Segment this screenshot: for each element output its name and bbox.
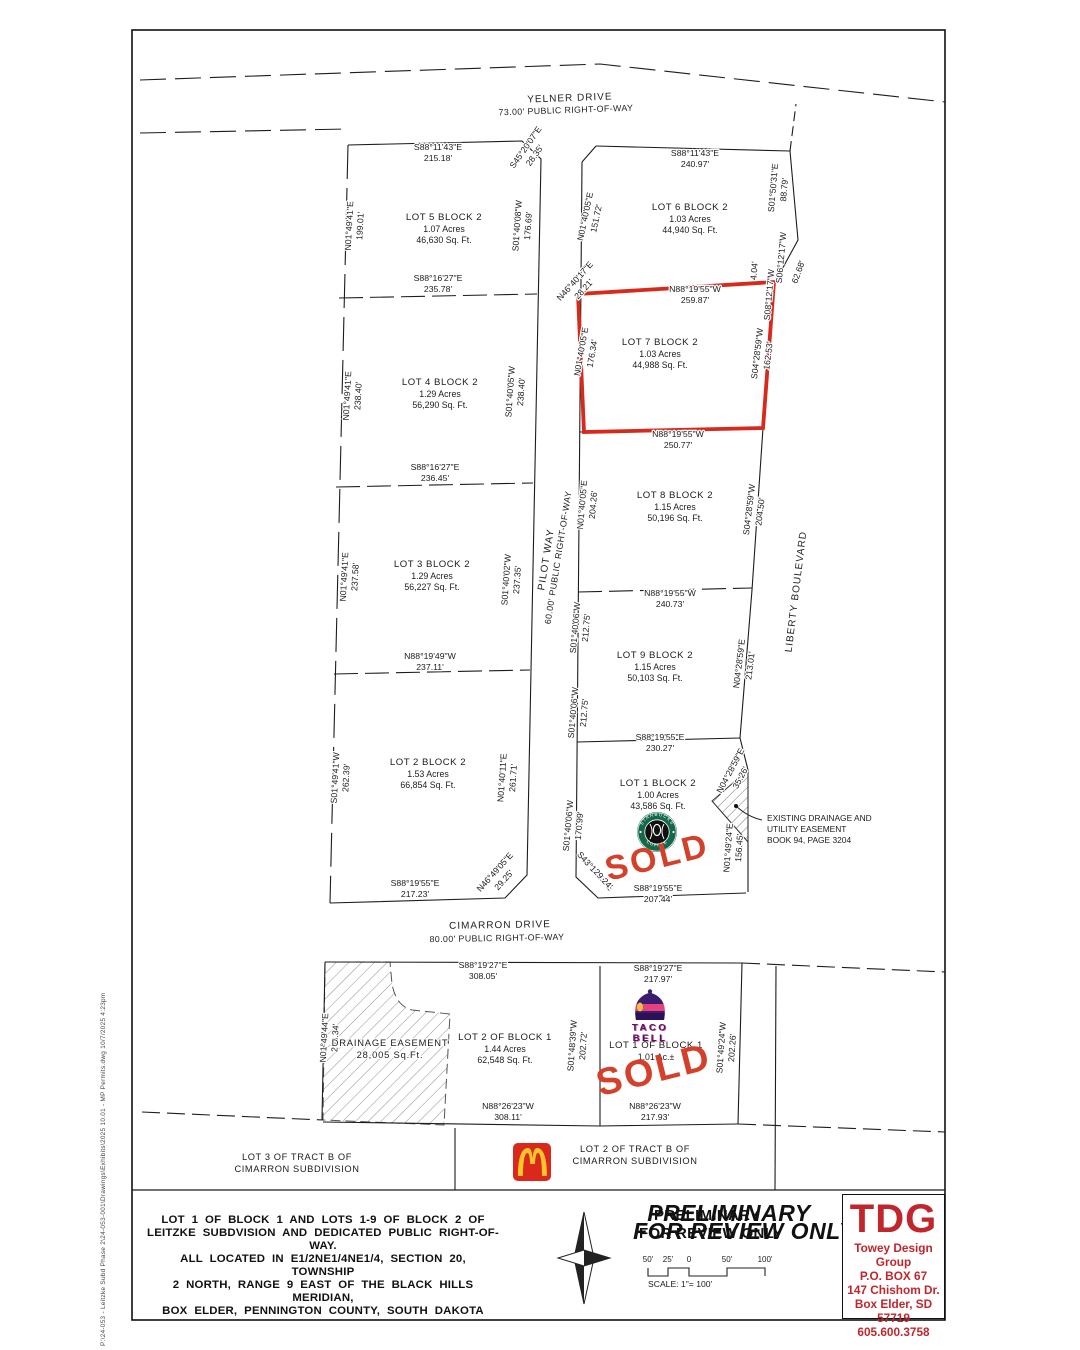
preliminary-stamp-line: FOR REVIEW ONLY	[639, 1225, 783, 1242]
lot-sqft-label: 44,988 Sq. Ft.	[632, 360, 687, 370]
lot-acres-label: 1.53 Acres	[407, 769, 449, 779]
bearing-label: S01°49'24"W	[714, 1021, 728, 1074]
street-name-label: CIMARRON DRIVE	[449, 919, 551, 932]
bearing-label: 217.93'	[641, 1112, 670, 1122]
taco-bell-word: TACO	[632, 1023, 668, 1034]
bearing-label: N88°26'23"W	[629, 1101, 681, 1111]
lot-name-label: LOT 2 OF BLOCK 1	[458, 1032, 552, 1043]
bearing-label: S01°50'31"E	[766, 163, 780, 213]
tract-note-line: CIMARRON SUBDIVISION	[234, 1164, 359, 1174]
bearing-label: N88°19'55"W	[652, 429, 704, 439]
bearing-label: N88°19'55"W	[644, 588, 696, 598]
lot-acres-label: 1.07 Acres	[423, 224, 465, 234]
scale-bar	[648, 1268, 765, 1276]
lot-acres-label: 1.29 Acres	[411, 571, 453, 581]
bearing-label: 238.40'	[515, 377, 527, 406]
bearing-label: 4.04'	[748, 261, 760, 281]
lot-name-label: LOT 3 BLOCK 2	[394, 559, 470, 570]
taco-bell-logo	[630, 989, 670, 1022]
bearing-label: S88°16'27"E	[414, 273, 463, 283]
easement-leader-dot	[734, 804, 738, 808]
bearing-label: S88°19'27"E	[459, 960, 508, 970]
bearing-label: 204.50'	[753, 497, 766, 527]
bearing-label: 215.18'	[424, 153, 453, 163]
bearing-label: 217.97'	[644, 974, 673, 984]
scale-bar-tick-label: 100'	[758, 1255, 773, 1264]
bearing-label: 212.75'	[580, 613, 592, 642]
lot-acres-label: 1.03 Acres	[639, 349, 681, 359]
bearing-label: 88.79'	[778, 177, 790, 202]
boundary-line	[790, 104, 796, 151]
bearing-label: 261.71'	[507, 763, 519, 792]
bearing-label: S01°40'05"W	[503, 365, 517, 418]
bearing-label: 240.97'	[681, 159, 710, 169]
bearing-label: 62.68'	[789, 259, 807, 285]
boundary-line	[336, 483, 533, 487]
street-row-label: 73.00' PUBLIC RIGHT-OF-WAY	[498, 103, 633, 118]
lot-sqft-label: 50,103 Sq. Ft.	[627, 673, 682, 683]
bearing-label: 176.69'	[522, 211, 534, 240]
bearing-label: S88°19'55"E	[634, 883, 683, 893]
bearing-label: S01°48'39"W	[565, 1019, 579, 1072]
bearing-label: N88°19'49"W	[404, 651, 456, 661]
lot-sqft-label: 46,630 Sq. Ft.	[416, 235, 471, 245]
lot-name-label: LOT 4 BLOCK 2	[402, 377, 478, 388]
bearing-label: 308.11'	[494, 1112, 522, 1122]
bearing-label: 235.78'	[424, 284, 453, 294]
taco-bell-word: BELL	[633, 1033, 668, 1044]
street-name-label: LIBERTY BOULEVARD	[784, 530, 810, 652]
scale-bar-tick-label: 50'	[722, 1255, 733, 1264]
bearing-label: N01°49'41"E	[341, 371, 354, 421]
bearing-label: 212.75'	[578, 698, 590, 727]
bearing-label: S06°12'17"W	[774, 231, 788, 284]
lot-acres-label: 1.44 Acres	[484, 1044, 526, 1054]
bearing-label: 237.11'	[416, 662, 444, 672]
bearing-label: N01°49'41"E	[338, 552, 351, 602]
boundary-line	[738, 963, 742, 1124]
bearing-label: N88°26'23"W	[482, 1101, 534, 1111]
bearing-label: 237.35'	[511, 565, 523, 594]
lot-name-label: LOT 8 BLOCK 2	[637, 490, 713, 501]
bearing-label: 236.45'	[421, 473, 450, 483]
lot-acres-label: 1.15 Acres	[634, 662, 676, 672]
bearing-label: N88°19'55"W	[669, 284, 721, 294]
bearing-label: N01°49'41"E	[343, 201, 356, 251]
lot-acres-label: 1.15 Acres	[654, 502, 696, 512]
lot-name-label: LOT 9 BLOCK 2	[617, 650, 693, 661]
boundary-line	[775, 966, 776, 1190]
boundary-line	[142, 1112, 323, 1120]
easement-note-line: BOOK 94, PAGE 3204	[767, 835, 851, 845]
scale-bar-tick-label: 50'	[643, 1255, 654, 1264]
scale-bar-tick-label: 0	[687, 1255, 692, 1264]
bearing-label: 170.99'	[573, 811, 585, 840]
bearing-label: S88°19'27"E	[634, 963, 683, 973]
bearing-label: 202.72'	[577, 1031, 589, 1060]
lot-sqft-label: 50,196 Sq. Ft.	[647, 513, 702, 523]
bearing-label: N01°49'24"E	[721, 823, 734, 873]
bearing-label: 250.77'	[664, 440, 693, 450]
lot-sqft-label: 66,854 Sq. Ft.	[400, 780, 455, 790]
tract-note-line: CIMARRON SUBDIVISION	[572, 1156, 697, 1166]
bearing-label: 240.73'	[656, 599, 685, 609]
lot-acres-label: 1.03 Acres	[669, 214, 711, 224]
bearing-label: S88°11'43"E	[671, 148, 719, 158]
bearing-label: 213.01'	[743, 651, 756, 681]
bearing-label: 204.26'	[587, 490, 599, 519]
bearing-label: 262.39'	[340, 763, 351, 792]
drainage-easement-label: DRAINAGE EASEMENT	[332, 1037, 449, 1048]
bearing-label: 259.87'	[681, 295, 710, 305]
north-arrow	[558, 1212, 610, 1304]
drainage-easement-label: 28,005 Sq.Ft.	[357, 1049, 424, 1060]
plat-drawing-svg: YELNER DRIVE73.00' PUBLIC RIGHT-OF-WAYPI…	[0, 0, 1080, 1350]
sheet-border	[132, 30, 945, 1320]
bearing-label: S88°11'43"E	[414, 142, 462, 152]
street-row-label: 80.00' PUBLIC RIGHT-OF-WAY	[429, 932, 564, 944]
scale-bar-tick-label: 25'	[663, 1255, 674, 1264]
bearing-label: 230.27'	[646, 743, 675, 753]
boundary-line	[582, 146, 596, 162]
bearing-label: S01°40'02"W	[499, 553, 513, 606]
boundary-line	[738, 1124, 945, 1132]
bearing-label: 156.45'	[733, 833, 745, 862]
lot-sqft-label: 56,227 Sq. Ft.	[404, 582, 459, 592]
lot-acres-label: 1.29 Acres	[419, 389, 461, 399]
bearing-label: 217.23'	[401, 889, 430, 899]
lot-acres-label: 1.00 Acres	[637, 790, 679, 800]
lot-name-label: LOT 2 BLOCK 2	[390, 757, 466, 768]
easement-note-line: UTILITY EASEMENT	[767, 824, 846, 834]
bearing-label: 308.05'	[469, 971, 498, 981]
bearing-label: 162.53'	[761, 341, 774, 371]
lot-sqft-label: 44,940 Sq. Ft.	[662, 225, 717, 235]
preliminary-stamp-line: PRELIMINARY	[654, 1207, 760, 1224]
boundary-line	[140, 129, 347, 133]
bearing-label: S01°49'41"W	[329, 751, 342, 803]
tract-note-line: LOT 3 OF TRACT B OF	[242, 1152, 352, 1162]
scale-caption: SCALE: 1"= 100'	[648, 1279, 713, 1289]
lot-sqft-label: 56,290 Sq. Ft.	[412, 400, 467, 410]
mcdonalds-logo	[513, 1143, 551, 1181]
boundary-line	[339, 294, 537, 298]
lot-name-label: LOT 1 BLOCK 2	[620, 778, 696, 789]
bearing-label: S88°19'55"E	[636, 732, 685, 742]
lot-name-label: LOT 7 BLOCK 2	[622, 337, 698, 348]
easement-note-line: EXISTING DRAINAGE AND	[767, 813, 872, 823]
bearing-label: S88°16'27"E	[411, 462, 460, 472]
bearing-label: 207.44'	[644, 894, 673, 904]
bearing-label: 237.58'	[349, 562, 360, 591]
bearing-label: S88°19'55"E	[391, 878, 440, 888]
plat-sheet: YELNER DRIVE73.00' PUBLIC RIGHT-OF-WAYPI…	[0, 0, 1080, 1350]
boundary-line	[742, 963, 945, 972]
lot-name-label: LOT 6 BLOCK 2	[652, 202, 728, 213]
lot-sqft-label: 43,586 Sq. Ft.	[630, 801, 685, 811]
lot-sqft-label: 62,548 Sq. Ft.	[477, 1055, 532, 1065]
bearing-label: 199.01'	[354, 211, 365, 240]
bearing-label: N01°40'11"E	[495, 753, 508, 802]
bearing-label: 202.26'	[726, 1033, 738, 1062]
bearing-label: S01°40'08"W	[510, 199, 524, 252]
tract-note-line: LOT 2 OF TRACT B OF	[580, 1144, 690, 1154]
lot-name-label: LOT 5 BLOCK 2	[406, 212, 482, 223]
boundary-line	[323, 1122, 738, 1126]
bearing-label: 238.40'	[352, 381, 363, 410]
